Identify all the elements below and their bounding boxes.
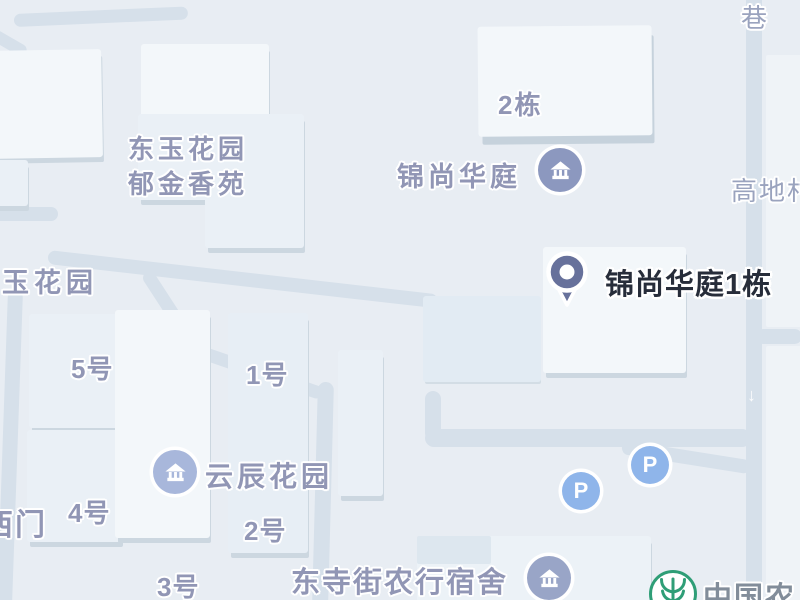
road-left-diagonal [0,290,23,600]
map-canvas[interactable]: 巷 高地村 ↓ 东玉花园 郁金香苑 玉花园 2栋 锦尚华庭 锦尚华庭1栋 5号 … [0,0,800,600]
building-label-hao3[interactable]: 3号 [157,567,199,600]
parking-icon-1[interactable]: P [631,446,669,484]
road-label-gaodicun[interactable]: 高地村 [731,171,800,208]
road-diagonal-upper [47,250,438,308]
oneway-arrow-icon: ↓ [747,385,756,406]
parking-letter: P [643,452,658,478]
bank-icon[interactable] [647,568,699,600]
building-middle-slab [115,310,210,538]
gate-label-west[interactable]: 西门 [0,500,47,544]
bank-label-partial[interactable]: 中国农 [703,574,796,600]
estate-label-yunchen[interactable]: 云辰花园 [205,455,333,495]
road-horizontal-mid [425,429,751,447]
selected-poi-pin-icon[interactable] [544,250,590,308]
estate-label-jinshang[interactable]: 锦尚华庭 [397,155,521,194]
building-label-hao1[interactable]: 1号 [246,355,288,392]
estate-label-left-cut[interactable]: 玉花园 [2,261,98,300]
house-icon [164,461,187,484]
estate-icon-yunchen[interactable] [153,450,197,494]
parking-icon-2[interactable]: P [562,472,600,510]
parking-letter: P [574,478,589,504]
building-yujinxiang-bottom [205,194,304,248]
road-label-xiang[interactable]: 巷 [741,0,767,35]
building-podium [423,296,541,382]
house-icon [549,159,572,182]
estate-label-topleft-line2: 郁金香苑 [118,167,258,202]
building-label-hao5[interactable]: 5号 [71,349,113,386]
building-top-left-small [0,160,28,206]
building-narrow [338,350,383,496]
road-branch-right [756,329,800,344]
selected-poi-label[interactable]: 锦尚华庭1栋 [605,261,772,303]
house-icon [538,567,561,590]
estate-icon-dongsi[interactable] [527,556,571,600]
building-label-hao4[interactable]: 4号 [68,493,110,530]
building-label-dong2[interactable]: 2栋 [498,85,542,122]
estate-icon-jinshang[interactable] [538,148,582,192]
building-right-bottom [766,346,800,600]
road-left-stub [0,207,58,221]
building-top-left [0,49,103,159]
dorm-label-dongsi[interactable]: 东寺街农行宿舍 [291,559,508,600]
building-label-hao2[interactable]: 2号 [244,511,286,548]
road-top-left [14,6,188,27]
estate-label-topleft[interactable]: 东玉花园 郁金香苑 [118,132,258,202]
estate-label-topleft-line1: 东玉花园 [118,132,258,167]
road-stub-up [425,391,441,441]
